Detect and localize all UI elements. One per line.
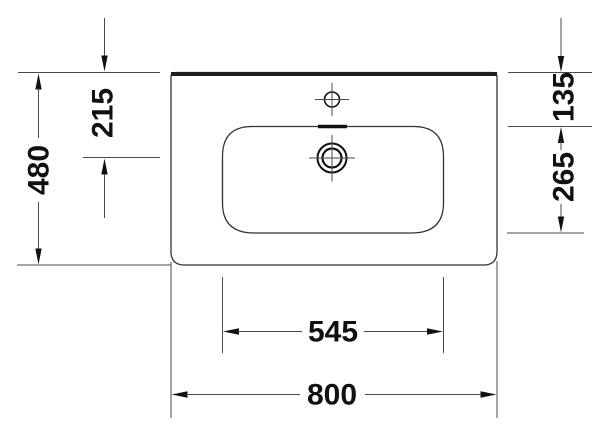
dim-215-arrow-up	[101, 159, 107, 175]
dim-215-label: 215	[87, 88, 120, 138]
dim-265-arrow-down	[558, 217, 564, 233]
dim-800-arrow-left	[172, 391, 188, 397]
dim-480-label: 480	[23, 145, 56, 195]
tap-hole-marker	[315, 83, 349, 116]
dimension-215: 215	[87, 18, 120, 218]
dimension-135: 135	[548, 18, 581, 122]
dim-545-arrow-left	[223, 328, 239, 334]
dim-135-label: 135	[548, 72, 581, 122]
dimension-480: 480	[23, 74, 56, 265]
dimension-800: 800	[172, 379, 497, 412]
dim-135-arrow-down	[558, 56, 564, 72]
dim-545-label: 545	[308, 316, 358, 349]
inner-bowl-outline	[223, 127, 444, 234]
dimension-545: 545	[223, 316, 443, 349]
drawing-canvas: 215 480 135 265 545 800	[0, 0, 600, 435]
dimension-265: 265	[548, 127, 581, 233]
washbasin-dimension-drawing: 215 480 135 265 545 800	[0, 0, 600, 435]
dim-800-label: 800	[307, 379, 357, 412]
dim-480-arrow-up	[35, 74, 41, 90]
dim-265-arrow-up	[558, 127, 564, 143]
dim-215-arrow-down	[101, 56, 107, 72]
dim-265-label: 265	[548, 152, 581, 202]
dim-545-arrow-right	[427, 328, 443, 334]
basin-outline	[171, 73, 497, 266]
dim-800-arrow-right	[481, 391, 497, 397]
drain-marker	[309, 135, 355, 182]
dim-480-arrow-down	[35, 249, 41, 265]
